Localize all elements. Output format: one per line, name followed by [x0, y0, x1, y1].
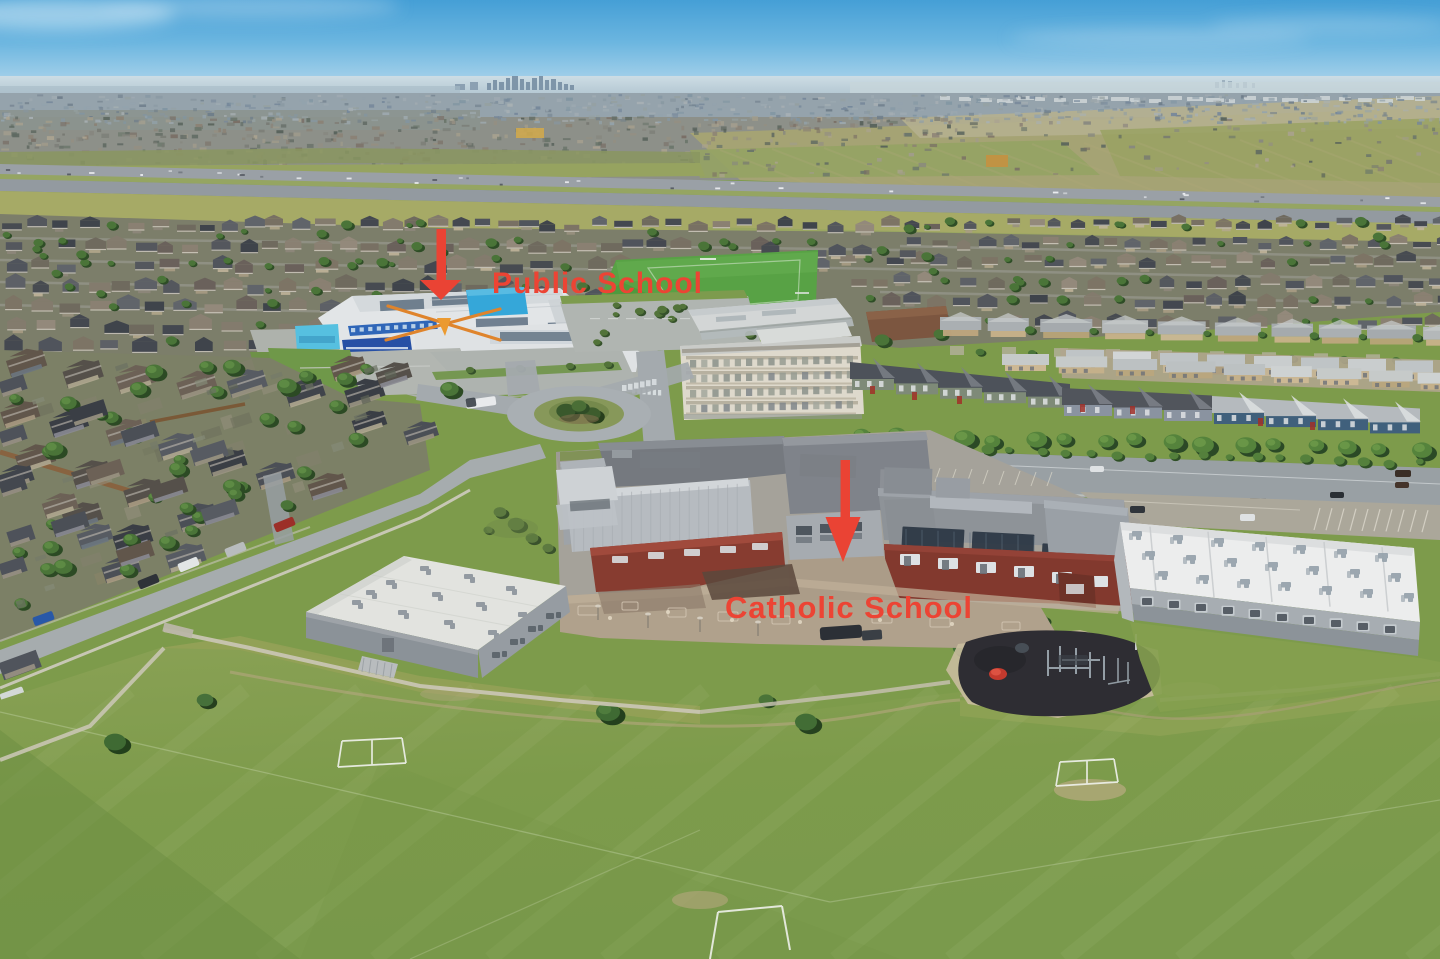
- svg-text:Public School: Public School: [492, 267, 702, 300]
- svg-text:Catholic School: Catholic School: [725, 590, 972, 625]
